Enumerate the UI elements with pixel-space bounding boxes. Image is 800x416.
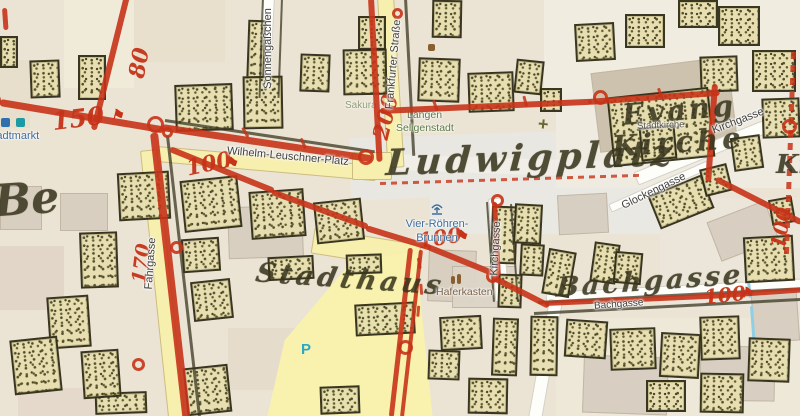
survey-ring — [392, 8, 403, 19]
survey-ring — [491, 194, 504, 207]
poi-label-fountain-line1: Vier-Röhren- — [402, 219, 472, 230]
survey-number-80: 80 — [126, 46, 153, 80]
historic-label-fragment-left: Be — [0, 176, 61, 224]
market-icon — [1, 118, 10, 127]
historic-building — [79, 231, 119, 288]
historic-building — [343, 49, 388, 96]
historic-building — [574, 22, 616, 62]
survey-road — [2, 8, 9, 30]
historic-building — [659, 332, 701, 379]
survey-number-100-d: 100 — [767, 206, 794, 251]
historic-building — [529, 316, 558, 376]
historic-building — [564, 319, 609, 360]
historic-building — [678, 0, 718, 28]
historic-building — [646, 380, 686, 412]
modern-building — [60, 193, 108, 231]
historic-building — [80, 349, 121, 400]
historic-building — [519, 243, 545, 276]
historic-building — [700, 373, 745, 414]
historic-building — [718, 6, 760, 46]
historic-building — [9, 336, 62, 396]
historic-building — [179, 175, 242, 233]
historic-label-fragment-right: Ki — [776, 152, 800, 178]
parking-icon: P — [301, 341, 311, 358]
historic-building — [190, 278, 234, 322]
historic-building — [299, 53, 330, 92]
poi-marker-icon — [428, 44, 435, 51]
survey-ring — [358, 149, 374, 165]
survey-ring — [593, 90, 608, 105]
historic-building — [699, 315, 741, 360]
street-label-sonnengaesschen: Sonnengäßchen — [263, 8, 274, 89]
fountain-icon — [429, 201, 445, 216]
historic-building — [427, 349, 460, 380]
historic-building — [417, 57, 461, 102]
haferkasten-icon — [457, 274, 461, 284]
historic-building — [29, 59, 60, 98]
poi-label-stadtmarkt: Stadtmarkt — [0, 131, 39, 142]
survey-ring — [782, 119, 797, 134]
historic-building — [625, 14, 665, 48]
survey-ring — [132, 358, 145, 371]
historic-building — [320, 385, 361, 414]
survey-ring — [398, 340, 413, 355]
historic-building — [609, 327, 656, 371]
historic-building — [468, 378, 509, 415]
survey-ring — [162, 127, 173, 138]
historic-building — [181, 237, 221, 274]
transit-stop-icon — [16, 118, 25, 127]
poi-label-fountain-line2: Brunnen — [402, 233, 472, 244]
historic-building — [432, 0, 463, 38]
historic-building — [513, 203, 543, 244]
historic-building — [747, 337, 791, 382]
poi-label-haferkasten: Haferkasten — [436, 287, 493, 298]
survey-number-150: 150 — [51, 103, 106, 134]
cross-icon — [537, 114, 549, 133]
place-label-seligenstadt: Seligenstadt — [396, 123, 454, 134]
historic-building — [183, 364, 233, 416]
survey-ring — [170, 241, 183, 254]
historic-building — [491, 318, 519, 377]
poi-label-sakura: Sakura — [345, 101, 377, 111]
modern-building — [557, 193, 609, 236]
historic-building — [439, 315, 483, 351]
street-label-bachgasse: Bachgasse — [594, 298, 644, 311]
survey-ring — [147, 116, 164, 133]
haferkasten-icon — [451, 276, 455, 284]
poi-label-stadtkirche: Stadtkirche — [637, 120, 685, 131]
historic-building — [354, 301, 416, 336]
map-canvas[interactable]: Ludwigplatz Stadthaus Bachgasse Evang Ki… — [0, 0, 800, 416]
historic-building — [0, 36, 18, 68]
